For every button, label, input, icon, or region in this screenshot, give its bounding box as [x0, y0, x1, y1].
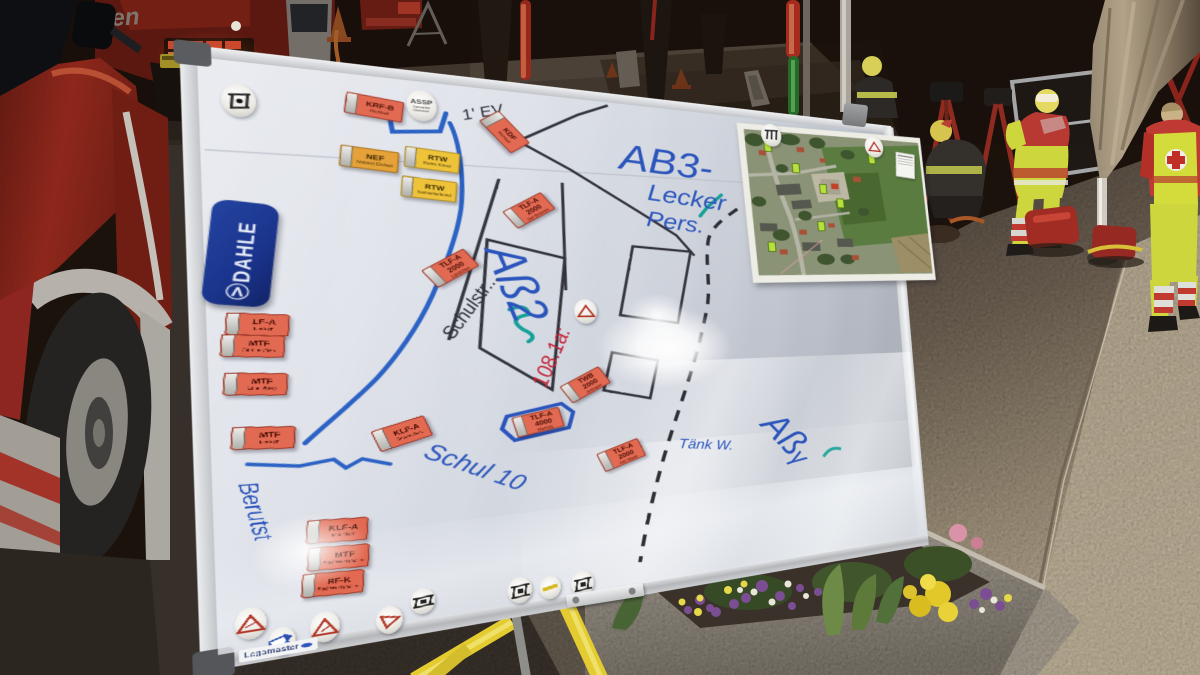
svg-text:Aßᵧ: Aßᵧ [752, 403, 823, 471]
svg-text:108.1a:: 108.1a: [527, 325, 576, 390]
svg-text:Tänk W.: Tänk W. [678, 436, 734, 453]
svg-text:AB3-: AB3- [616, 136, 712, 189]
svg-text:Schul 10: Schul 10 [419, 438, 532, 496]
